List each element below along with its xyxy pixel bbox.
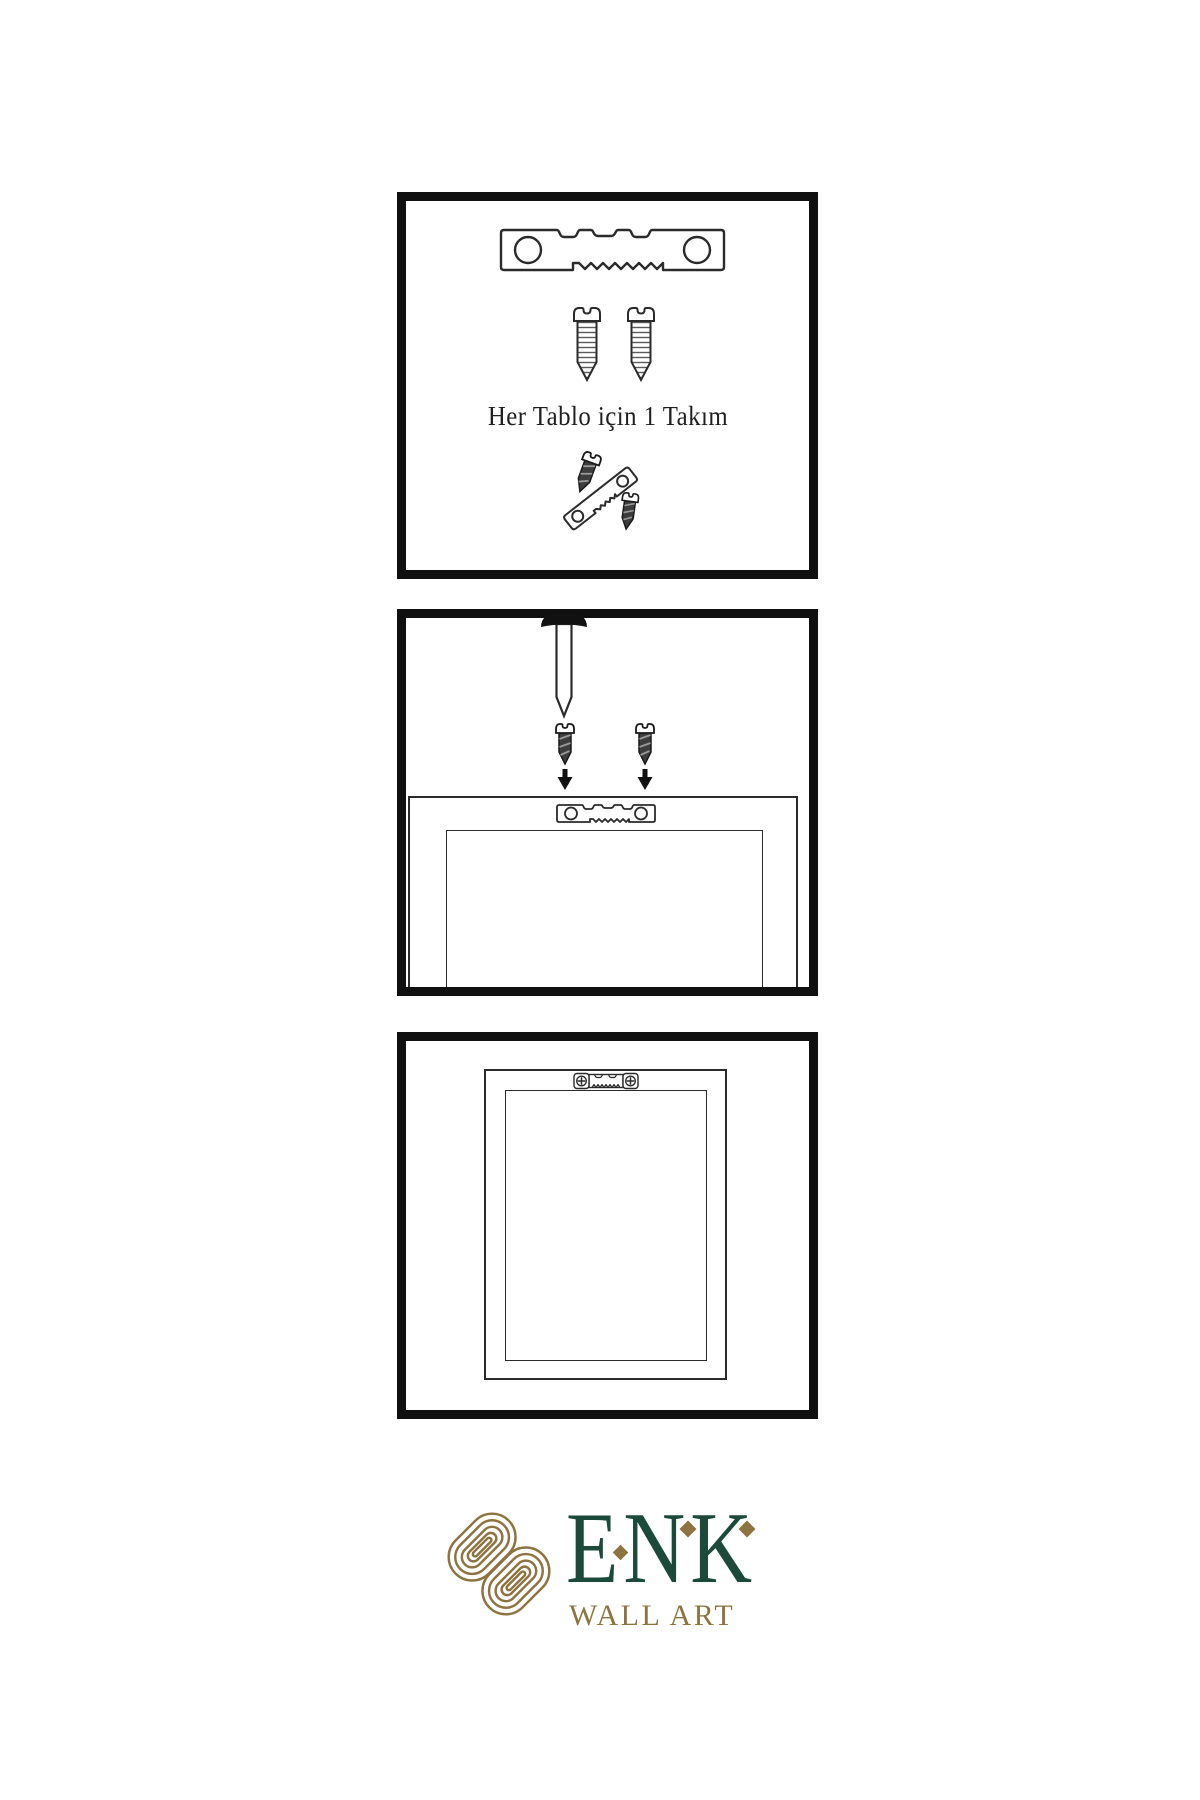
frame-back-inner	[446, 830, 763, 987]
kit-caption: Her Tablo için 1 Takım	[487, 401, 727, 432]
crosshead-screw-icon	[574, 1074, 589, 1089]
sawtooth-hanger-small-icon	[555, 802, 657, 825]
screw-down-icon	[633, 722, 657, 792]
panel-kit: Her Tablo için 1 Takım	[397, 192, 818, 579]
page-canvas: Her Tablo için 1 Takım	[0, 0, 1200, 1800]
screw-into-hanger-icon	[545, 438, 675, 538]
arrow-down-icon	[638, 769, 653, 790]
panel-hung	[397, 1032, 818, 1419]
crosshead-screw-icon	[623, 1074, 638, 1089]
arrow-down-icon	[558, 769, 573, 790]
sawtooth-hanger-mounted-icon	[572, 1072, 640, 1090]
panel-install	[397, 609, 818, 996]
frame-front-inner	[505, 1090, 707, 1361]
screw-down-icon	[553, 722, 577, 792]
screw-icon	[571, 305, 603, 383]
sawtooth-hanger-icon	[495, 223, 730, 277]
knot-logo-icon	[438, 1500, 560, 1628]
brand-name: ENK	[566, 1498, 757, 1600]
nail-icon	[540, 611, 588, 719]
screw-icon	[625, 305, 657, 383]
brand-subtitle: WALL ART	[569, 1599, 735, 1633]
